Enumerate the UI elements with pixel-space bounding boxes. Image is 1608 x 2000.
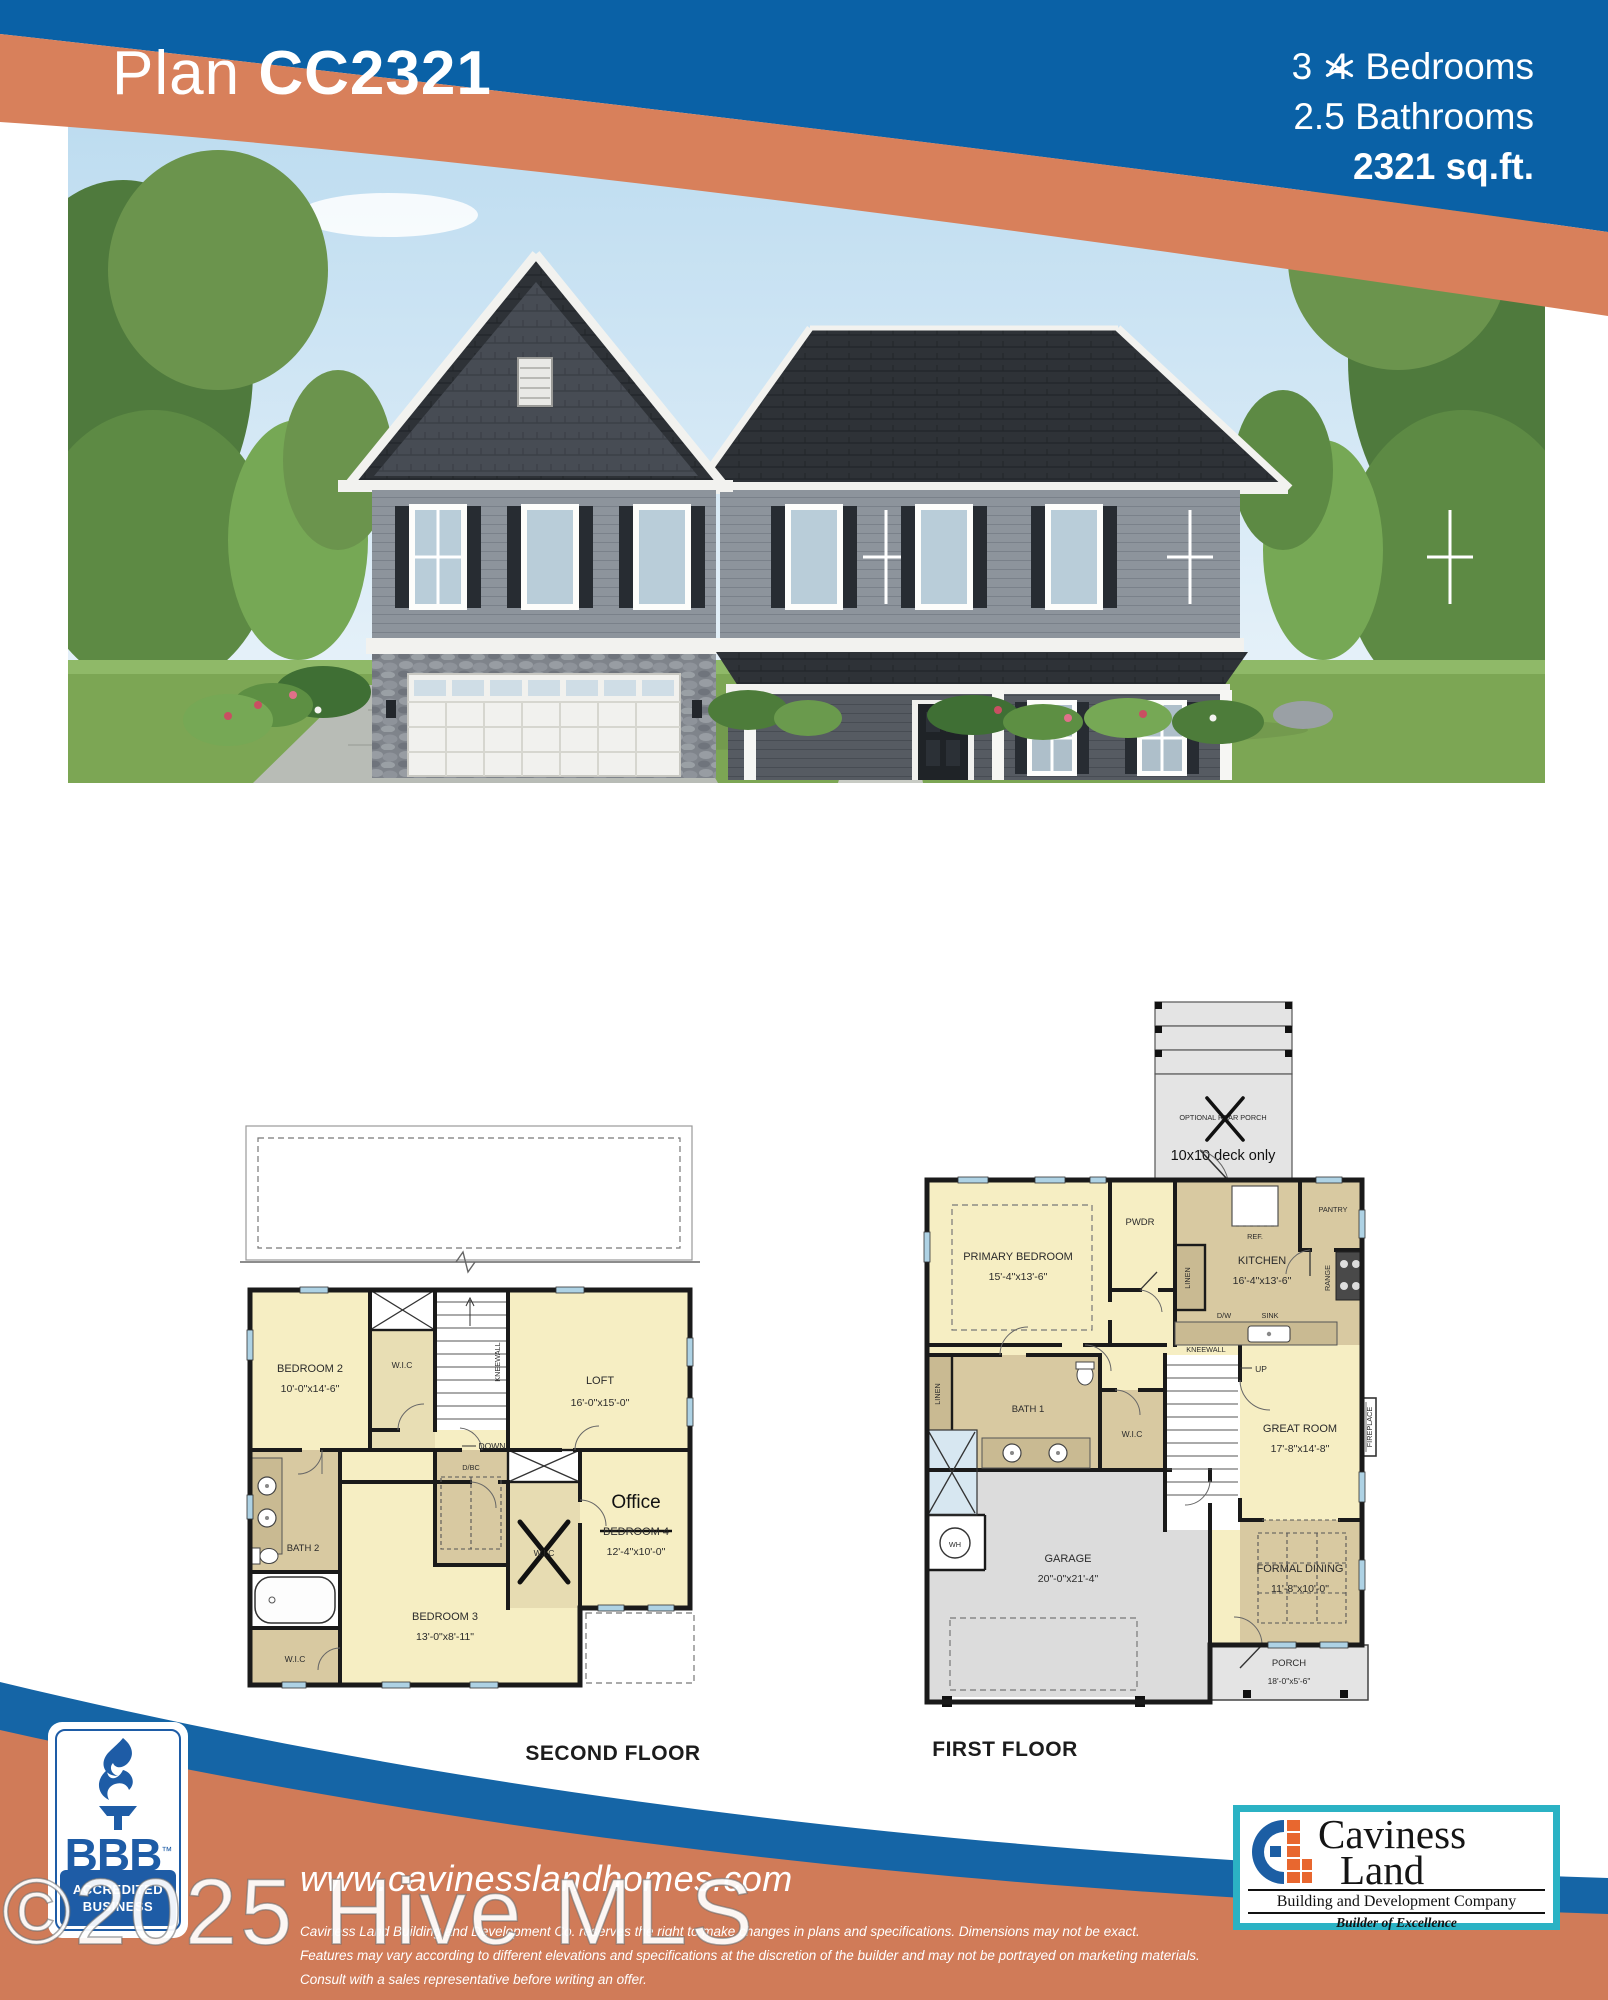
kitchen-dims: 16'-4"x13'-6" xyxy=(1233,1275,1292,1287)
first-floor-caption: FIRST FLOOR xyxy=(865,1738,1145,1762)
bedroom3-dims: 13'-0"x8'-11" xyxy=(416,1631,474,1643)
bbb-torch-icon xyxy=(85,1736,151,1832)
wic-crossed-room xyxy=(508,1482,580,1608)
bathtub xyxy=(255,1577,335,1623)
primary-dims: 15'-4"x13'-6" xyxy=(989,1271,1048,1283)
great-room-dims: 17'-8"x14'-8" xyxy=(1271,1443,1330,1455)
cl-monogram-icon xyxy=(1248,1816,1312,1888)
deck-note: 10x10 deck only xyxy=(1171,1148,1277,1164)
roof-below-dashed xyxy=(586,1613,694,1683)
pwdr-label: PWDR xyxy=(1125,1217,1154,1228)
gable-vent-icon xyxy=(518,358,552,406)
linen-left-label: LINEN xyxy=(933,1383,942,1405)
bathrooms-line: 2.5 Bathrooms xyxy=(1292,92,1534,142)
spec-summary: 3 4 Bedrooms 2.5 Bathrooms 2321 sq.ft. xyxy=(1292,42,1534,192)
disclaimer-line-3: Consult with a sales representative befo… xyxy=(300,1968,1360,1992)
dw-label: D/W xyxy=(1217,1311,1231,1320)
kneewall-label: KNEEWALL xyxy=(493,1342,502,1381)
porch-label: PORCH xyxy=(1272,1658,1306,1669)
wic-top-label: W.I.C xyxy=(392,1360,413,1370)
primary-label: PRIMARY BEDROOM xyxy=(963,1251,1073,1263)
garage-dims: 20"-0"x21'-4" xyxy=(1038,1573,1099,1585)
house-rendering-photo xyxy=(68,120,1545,783)
bedrooms-count: 3 xyxy=(1292,46,1313,87)
bedroom2-label: BEDROOM 2 xyxy=(277,1363,343,1375)
loft-dims: 16'-0"x15'-0" xyxy=(571,1397,630,1409)
dining-label: FORMAL DINING xyxy=(1257,1563,1344,1575)
great-room-label: GREAT ROOM xyxy=(1263,1423,1337,1435)
porch-area xyxy=(1210,1645,1368,1700)
kneewall-first-label: KNEEWALL xyxy=(1186,1345,1225,1354)
sqft-line: 2321 sq.ft. xyxy=(1292,142,1534,192)
bath2-label: BATH 2 xyxy=(287,1543,320,1554)
optional-rear-porch-deck: OPTIONAL REAR PORCH 10x10 deck only xyxy=(1155,1002,1292,1180)
porch-dims: 18'-0"x5'-6" xyxy=(1268,1676,1311,1686)
bedrooms-line: 3 4 Bedrooms xyxy=(1292,42,1534,92)
up-label: UP xyxy=(1255,1364,1267,1374)
plan-code: CC2321 xyxy=(258,39,491,108)
caviness-name-line2: Land xyxy=(1340,1852,1466,1888)
bbb-trademark: ™ xyxy=(161,1846,171,1858)
garage-door xyxy=(408,674,680,776)
wic-bottom-label: W.I.C xyxy=(285,1654,306,1664)
wic-crossed-label: W.I.C xyxy=(534,1548,555,1558)
mls-watermark: ©2025 Hive MLS xyxy=(2,1858,756,1966)
second-floor-plan: BEDROOM 2 10'-0"x14'-6" W.I.C LOFT 16'-0… xyxy=(240,1118,705,1768)
dbc-label: D/BC xyxy=(462,1463,479,1472)
fireplace-label: FIREPLACE xyxy=(1365,1407,1374,1448)
bedroom3-label: BEDROOM 3 xyxy=(412,1611,478,1623)
wh-label: WH xyxy=(949,1540,961,1549)
caviness-rule-bottom xyxy=(1248,1912,1545,1914)
bedrooms-old-count-crossed: 4 xyxy=(1329,42,1350,92)
sink-label: SINK xyxy=(1261,1311,1278,1320)
office-old-label: BEDROOM 4 xyxy=(603,1526,669,1538)
office-label: Office xyxy=(611,1492,660,1513)
dining-dims: 11'-8"x10'-0" xyxy=(1271,1583,1329,1595)
pantry-label: PANTRY xyxy=(1319,1205,1348,1214)
down-label: DOWN xyxy=(479,1441,506,1451)
loft-label: LOFT xyxy=(586,1375,614,1387)
page-title: Plan CC2321 xyxy=(112,38,492,109)
bedrooms-word: Bedrooms xyxy=(1365,46,1534,87)
office-dims: 12'-4"x10'-0" xyxy=(607,1546,666,1558)
kitchen-label: KITCHEN xyxy=(1238,1255,1286,1267)
ref-label: REF. xyxy=(1247,1232,1263,1241)
linen-hall-label: LINEN xyxy=(1183,1267,1192,1289)
caviness-subtitle: Building and Development Company xyxy=(1248,1892,1545,1911)
open-below-area xyxy=(240,1126,700,1272)
flyer-page: Plan CC2321 3 4 Bedrooms 2.5 Bathrooms 2… xyxy=(0,0,1608,2000)
garage-label: GARAGE xyxy=(1044,1553,1091,1565)
second-floor-caption: SECOND FLOOR xyxy=(473,1742,753,1766)
caviness-tagline: Builder of Excellence xyxy=(1248,1915,1545,1931)
bedroom2-dims: 10'-0"x14'-6" xyxy=(281,1383,340,1395)
bath1-label: BATH 1 xyxy=(1012,1404,1045,1415)
caviness-land-logo: Caviness Land Building and Development C… xyxy=(1233,1805,1560,1930)
wic-first-label: W.I.C xyxy=(1122,1429,1143,1439)
range-label: RANGE xyxy=(1323,1265,1332,1291)
plan-word: Plan xyxy=(112,39,240,108)
first-floor-plan: OPTIONAL REAR PORCH 10x10 deck only xyxy=(870,795,1430,1715)
